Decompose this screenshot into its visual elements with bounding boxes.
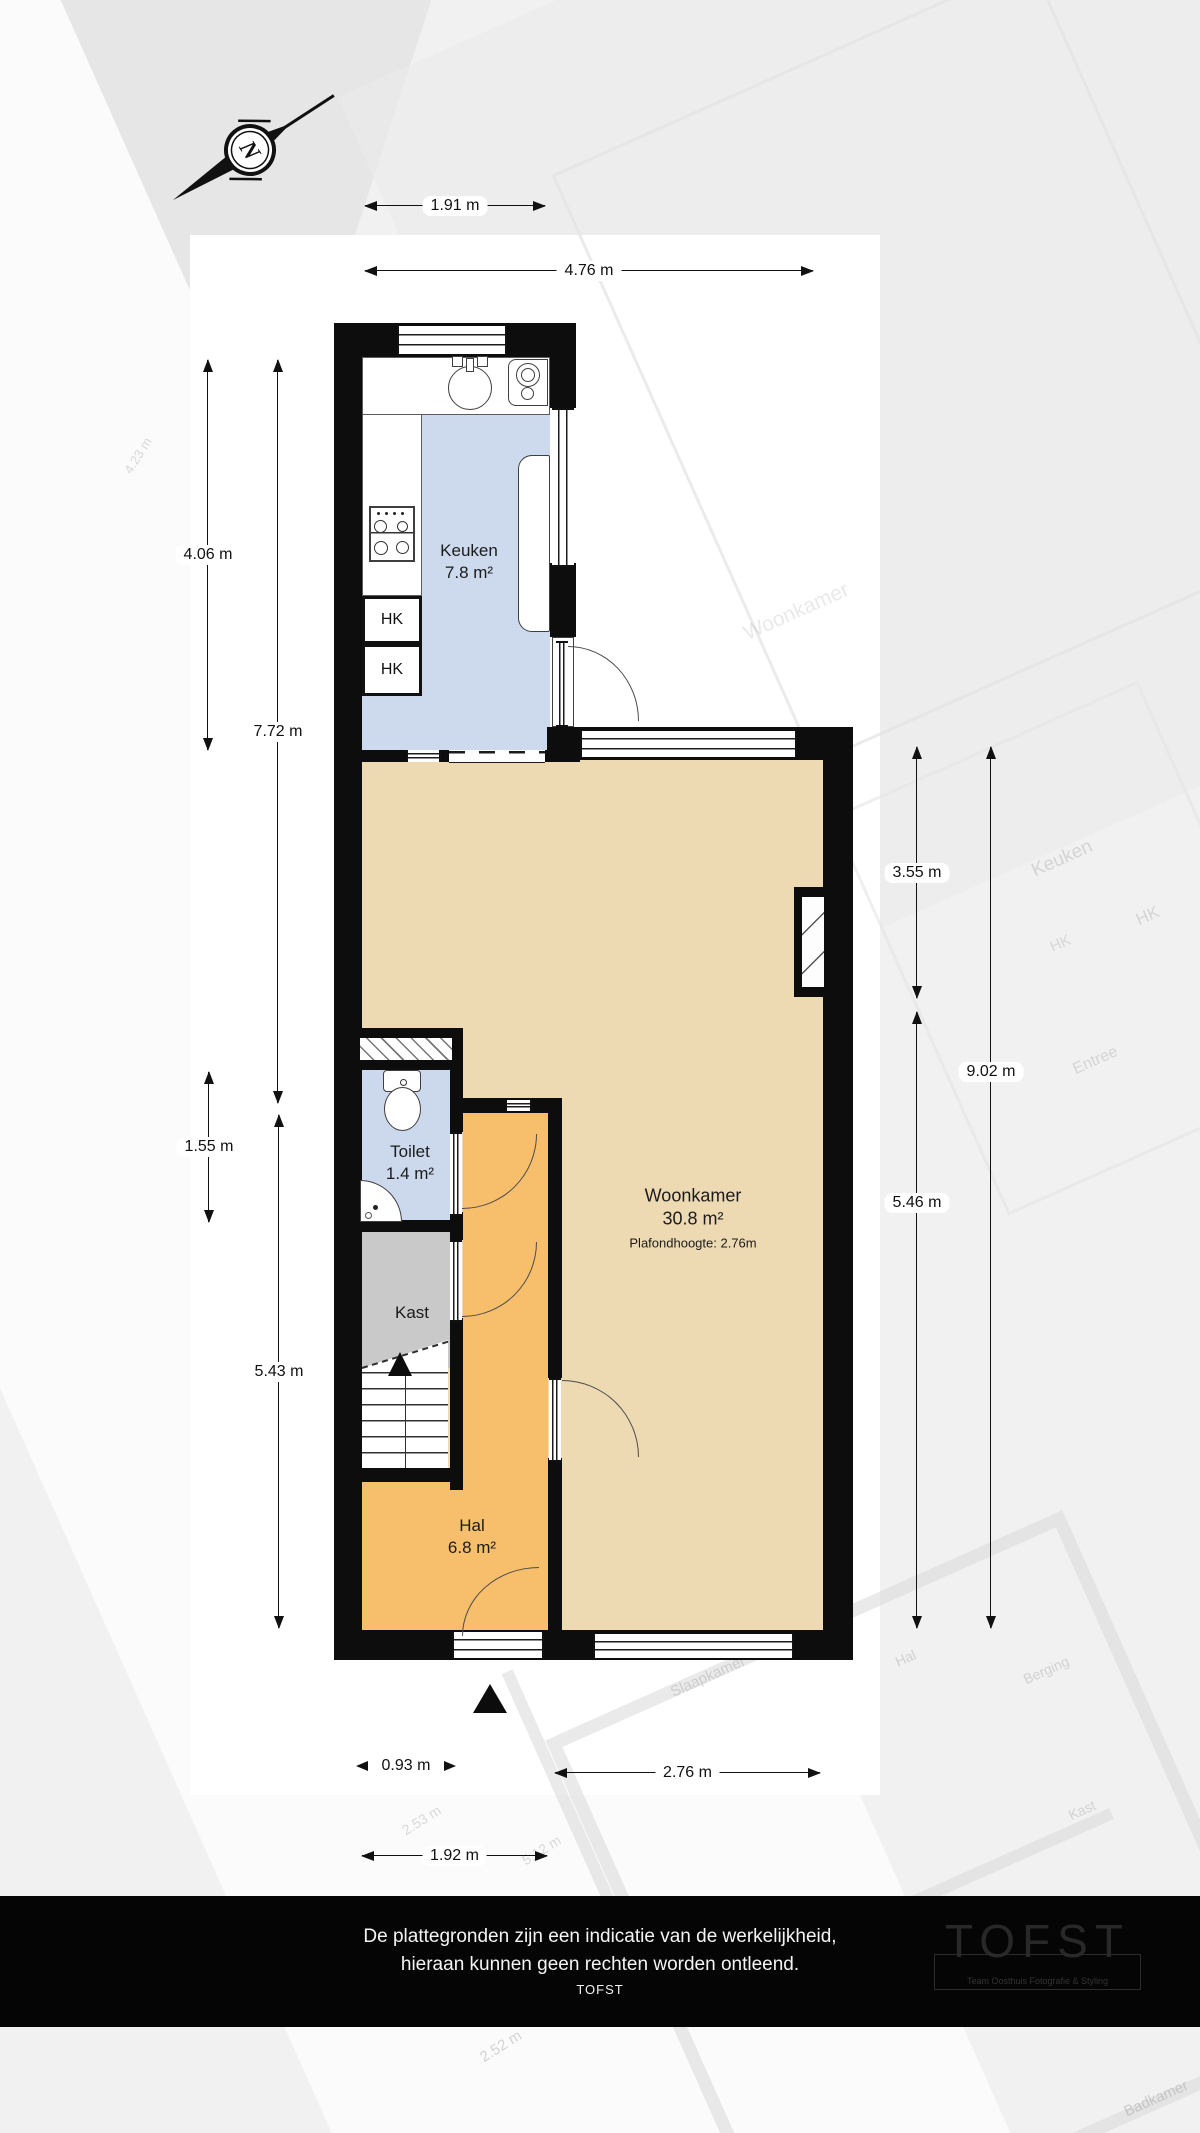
arrowhead-icon: [912, 986, 922, 999]
room-name-hal: Hal: [459, 1516, 485, 1536]
arrowhead-icon: [274, 1114, 284, 1127]
floorplan-canvas: Woonkamer Keuken HK HK Entree Slaapkamer…: [0, 0, 1200, 2133]
watermark-text: Keuken: [1028, 836, 1096, 882]
wall-segment: [548, 1098, 562, 1378]
cistern-button-icon: [400, 1079, 407, 1086]
stove-knob-icon: [377, 512, 380, 515]
tofst-logo-subtext: Team Oosthuis Fotografie & Styling: [930, 1976, 1145, 1986]
arrowhead-icon: [364, 266, 377, 276]
dimension-label: 9.02 m: [959, 1062, 1024, 1082]
dimension-label: 7.72 m: [246, 722, 311, 742]
toilet-bowl: [384, 1087, 421, 1131]
room-name-keuken: Keuken: [440, 541, 498, 561]
stove-burner-icon: [374, 541, 388, 555]
stair-direction-arrow-icon: [388, 1352, 412, 1376]
basin-tap-icon: [365, 1212, 372, 1219]
stove: [369, 506, 415, 562]
watermark-text: Woonkamer: [740, 578, 853, 646]
north-arrow-icon: N: [91, 0, 409, 309]
arrowhead-icon: [361, 1851, 374, 1861]
dimension-label: 4.76 m: [557, 261, 622, 281]
door-swing-arc: [568, 646, 639, 721]
door-leaf: [556, 641, 568, 727]
dimension-label: 2.76 m: [655, 1763, 720, 1783]
stove-burner-icon: [374, 520, 387, 533]
dimension-line: 5.46 m: [916, 1012, 917, 1628]
dimension-line: 0.93 m: [356, 1756, 456, 1776]
arrowhead-icon: [533, 201, 546, 211]
dimension-line: 2.76 m: [555, 1772, 820, 1773]
arrowhead-icon: [986, 1616, 996, 1629]
arrowhead-icon: [356, 1761, 368, 1771]
stair-center-line: [405, 1372, 406, 1468]
arrowhead-icon: [203, 359, 213, 372]
room-name-woonkamer: Woonkamer: [645, 1186, 742, 1207]
wall-segment: [450, 1318, 463, 1490]
arrowhead-icon: [274, 1616, 284, 1629]
window-symbol: [397, 326, 507, 354]
dimension-line: 5.43 m: [278, 1115, 279, 1628]
background-plan-wall: [502, 1669, 623, 1921]
watermark-text: HK: [1047, 931, 1073, 955]
room-area-toilet: 1.4 m²: [386, 1164, 434, 1184]
basin-drain-icon: [373, 1205, 378, 1210]
room-area-woonkamer: 30.8 m²: [662, 1209, 723, 1230]
dimension-label: 5.43 m: [247, 1362, 312, 1382]
faucet-icon: [466, 358, 474, 372]
door-leaf: [450, 1240, 462, 1322]
dimension-line: 1.55 m: [208, 1072, 209, 1222]
watermark-text: 4.23 m: [121, 435, 155, 477]
faucet-handle-icon: [452, 356, 463, 367]
cupboard-label: HK: [381, 611, 403, 629]
room-area-hal: 6.8 m²: [448, 1538, 496, 1558]
dimension-label: 3.55 m: [885, 863, 950, 883]
room-area-keuken: 7.8 m²: [445, 563, 493, 583]
background-plan-outline: [551, 0, 1200, 765]
arrowhead-icon: [204, 1210, 214, 1223]
door-leaf: [450, 1132, 462, 1216]
window-symbol: [552, 408, 574, 567]
door-leaf: [549, 1378, 561, 1462]
watermark-text: Hal: [893, 1646, 919, 1669]
dimension-line: 4.06 m: [207, 360, 208, 750]
chimney-niche-hatch: [802, 897, 824, 987]
footer-disclaimer-bar: De plattegronden zijn een indicatie van …: [0, 1896, 1200, 2027]
arrowhead-icon: [912, 1011, 922, 1024]
watermark-text: Badkamer: [1121, 2077, 1190, 2120]
dimension-line: 1.91 m: [365, 205, 545, 206]
arrowhead-icon: [273, 359, 283, 372]
kitchen-counter: [362, 414, 422, 596]
stove-burner-icon: [397, 521, 408, 532]
dimension-line: 4.76 m: [365, 270, 813, 271]
dimension-label: 1.91 m: [423, 196, 488, 216]
arrowhead-icon: [808, 1768, 821, 1778]
cupboard-hk-2: HK: [362, 644, 422, 696]
watermark-text: 2.52 m: [477, 2027, 525, 2066]
arrowhead-icon: [986, 746, 996, 759]
glass-partition-symbol: [449, 750, 545, 763]
room-name-toilet: Toilet: [390, 1142, 430, 1162]
wall-segment: [550, 563, 576, 637]
boiler-dial-icon: [521, 387, 534, 400]
tofst-logo: TOFST Team Oosthuis Fotografie & Styling: [930, 1914, 1145, 1992]
dimension-label: 1.92 m: [422, 1846, 487, 1866]
arrowhead-icon: [912, 746, 922, 759]
room-name-kast: Kast: [395, 1303, 429, 1323]
entrance-arrow-icon: [473, 1684, 507, 1713]
watermark-text: Kast: [1066, 1797, 1098, 1823]
wall-segment: [334, 1468, 463, 1482]
wall-segment: [360, 1060, 452, 1070]
boiler-dial-icon: [521, 368, 535, 382]
wall-segment: [548, 1458, 562, 1630]
watermark-text: 2.53 m: [399, 1802, 444, 1838]
window-symbol: [593, 1634, 794, 1658]
wall-segment: [550, 323, 576, 408]
wall-segment: [334, 323, 362, 1660]
stove-knob-icon: [385, 512, 388, 515]
arrowhead-icon: [444, 1761, 456, 1771]
arrowhead-icon: [535, 1851, 548, 1861]
void-hatch-strip: [360, 1038, 452, 1060]
cupboard-label: HK: [381, 661, 403, 679]
arrowhead-icon: [364, 201, 377, 211]
watermark-text: HK: [1133, 902, 1163, 930]
passage-symbol: [505, 1100, 532, 1111]
window-symbol: [406, 750, 441, 762]
wall-segment: [450, 1212, 463, 1240]
dimension-label: 4.06 m: [176, 545, 241, 565]
arrowhead-icon: [801, 266, 814, 276]
kitchen-sink: [448, 366, 492, 410]
room-ceiling-height: Plafondhoogte: 2.76m: [629, 1236, 756, 1251]
dimension-line: 1.92 m: [362, 1855, 547, 1856]
dimension-label: 5.46 m: [885, 1193, 950, 1213]
tall-kitchen-unit: [518, 455, 550, 632]
window-symbol: [580, 731, 797, 757]
watermark-text: Berging: [1021, 1653, 1072, 1687]
stove-knob-icon: [401, 512, 404, 515]
watermark-text: Entree: [1070, 1043, 1120, 1079]
arrowhead-icon: [912, 1616, 922, 1629]
stove-burner-icon: [396, 541, 409, 554]
arrowhead-icon: [273, 1091, 283, 1104]
dimension-label: 1.55 m: [177, 1137, 242, 1157]
dimension-line: 3.55 m: [916, 747, 917, 998]
arrowhead-icon: [204, 1071, 214, 1084]
cupboard-hk-1: HK: [362, 596, 422, 644]
faucet-handle-icon: [477, 356, 488, 367]
arrowhead-icon: [203, 738, 213, 751]
background-plan-outline: [831, 681, 1200, 1216]
arrowhead-icon: [554, 1768, 567, 1778]
dimension-line: 7.72 m: [277, 360, 278, 1103]
stove-knob-icon: [393, 512, 396, 515]
dimension-line: 9.02 m: [990, 747, 991, 1628]
dimension-label: 0.93 m: [377, 1757, 436, 1775]
